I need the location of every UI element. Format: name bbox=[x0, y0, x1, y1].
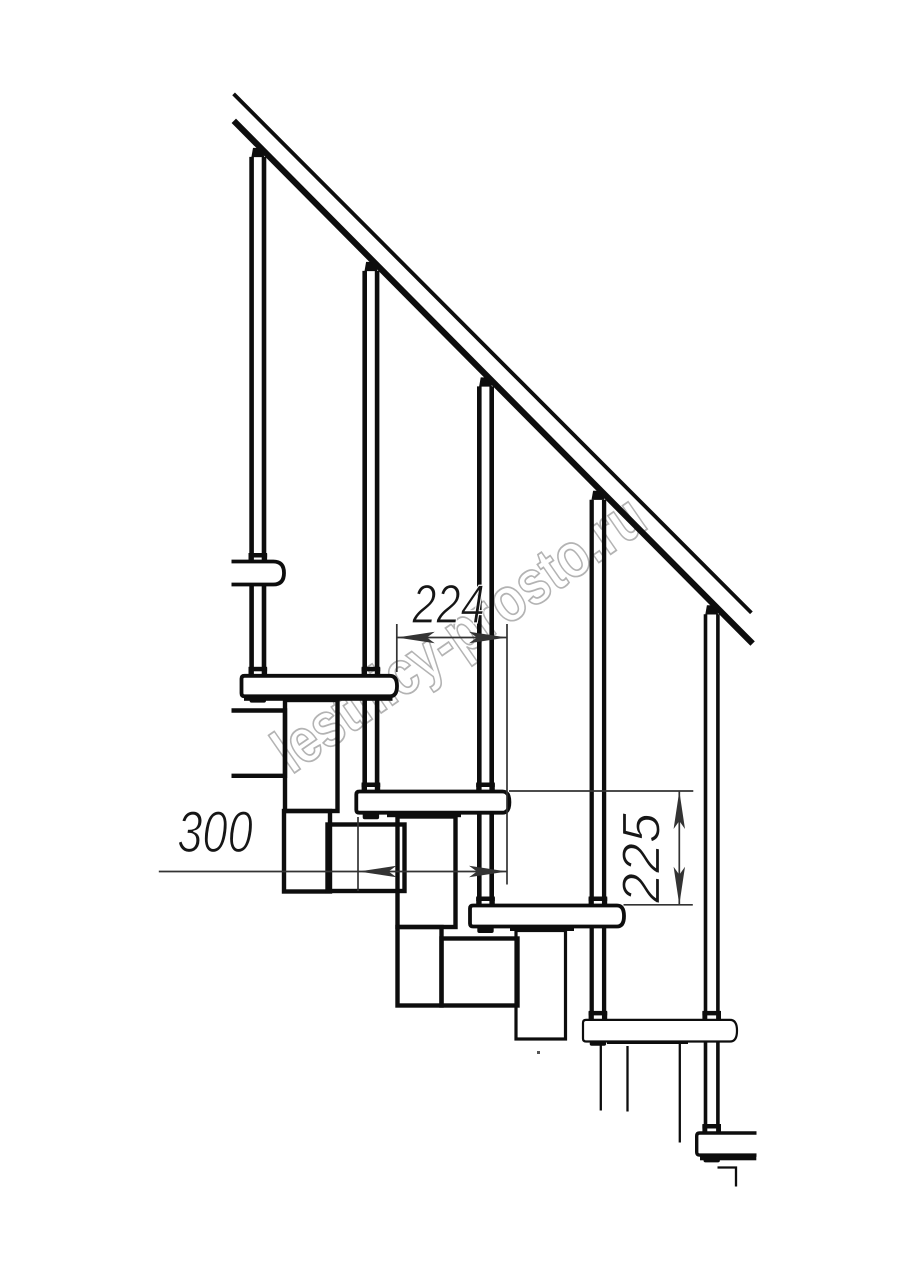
svg-text:224: 224 bbox=[411, 573, 484, 635]
svg-text:osto.ru: osto.ru bbox=[474, 481, 658, 638]
svg-text:300: 300 bbox=[177, 801, 253, 866]
svg-text:225: 225 bbox=[612, 812, 672, 904]
